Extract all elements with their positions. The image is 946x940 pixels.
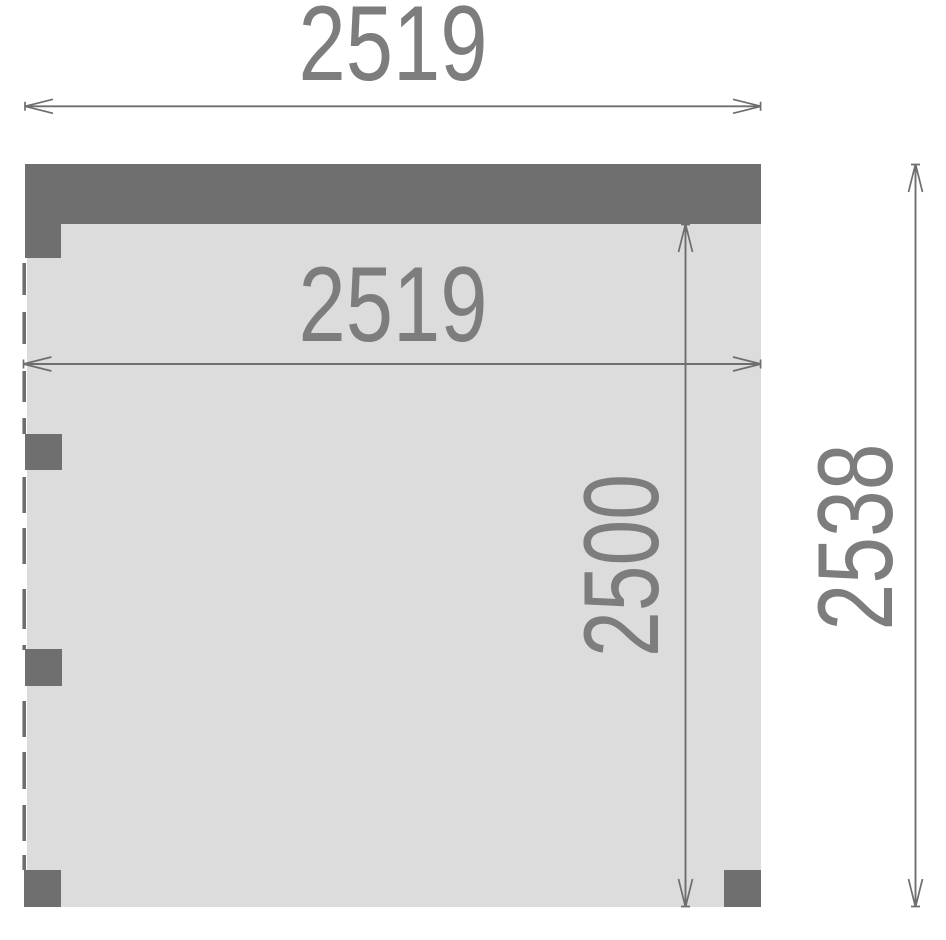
svg-text:2500: 2500	[561, 474, 681, 657]
svg-text:2538: 2538	[795, 444, 915, 631]
svg-text:2519: 2519	[299, 244, 488, 364]
svg-text:2519: 2519	[299, 0, 488, 103]
